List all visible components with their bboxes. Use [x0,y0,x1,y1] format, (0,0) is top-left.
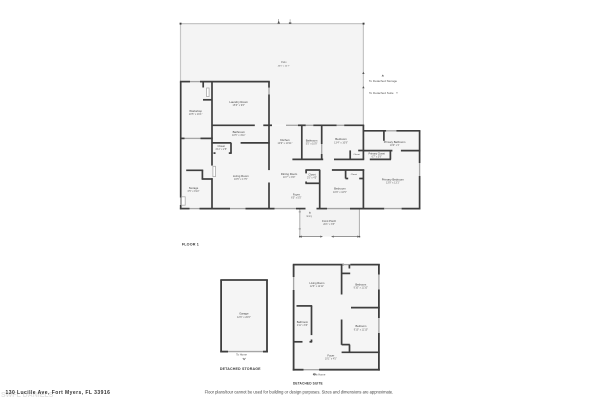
svg-text:4'11" x 2'8": 4'11" x 2'8" [215,148,227,151]
svg-text:2'5" x 4'5": 2'5" x 4'5" [307,178,317,180]
svg-text:Closet: Closet [308,173,315,176]
svg-text:To Home: To Home [236,352,247,356]
svg-text:9'10" x 11'10": 9'10" x 11'10" [354,287,368,290]
svg-text:DETACHED SUITE: DETACHED SUITE [293,381,323,385]
svg-text:10'9" x 10'11": 10'9" x 10'11" [277,142,292,145]
svg-text:16'5" x 17'5": 16'5" x 17'5" [234,178,248,181]
svg-text:Closet: Closet [351,173,358,176]
svg-text:Closet: Closet [353,153,360,156]
svg-text:»: » [396,91,398,95]
svg-text:6'7" x 3'9": 6'7" x 3'9" [372,156,382,158]
svg-text:5'5" x 10'9": 5'5" x 10'9" [306,143,318,146]
svg-text:13'9" x 13'1": 13'9" x 13'1" [386,182,400,185]
svg-text:6'5" x 5'5": 6'5" x 5'5" [291,197,302,200]
svg-text:12'6" x 20'6": 12'6" x 20'6" [237,316,251,319]
svg-text:Bathroom: Bathroom [297,320,308,324]
svg-text:4'11" x 8'6": 4'11" x 8'6" [297,325,308,327]
svg-text:10'1" x 4'5": 10'1" x 4'5" [325,358,337,361]
svg-text:130 Lucille Ave, Fort Myers, F: 130 Lucille Ave, Fort Myers, FL 33916 [6,390,111,396]
svg-text:To Detached Suite: To Detached Suite [369,91,394,95]
svg-text:To Detached Storage: To Detached Storage [369,79,398,83]
svg-text:46'5" x 24'7": 46'5" x 24'7" [278,66,290,68]
svg-text:DETACHED STORAGE: DETACHED STORAGE [220,367,261,371]
svg-text:12'6" x 12'11": 12'6" x 12'11" [310,285,324,288]
svg-text:Entry: Entry [307,215,313,218]
svg-text:Floor plans/tour cannot be use: Floor plans/tour cannot be used for buil… [205,390,394,395]
svg-text:10'7" x 9'9": 10'7" x 9'9" [283,176,295,179]
svg-text:15'6" x 9'6": 15'6" x 9'6" [233,104,245,107]
svg-text:10'9" x 10'5": 10'9" x 10'5" [333,191,347,194]
svg-text:9'10" x 11'10": 9'10" x 11'10" [354,328,368,331]
svg-text:Primary Closet: Primary Closet [368,152,385,155]
svg-text:FLOOR 1: FLOOR 1 [182,243,199,247]
svg-text:10'9" x 5': 10'9" x 5' [390,144,400,147]
svg-text:10'5" x 4'11": 10'5" x 4'11" [232,134,246,137]
svg-text:10'5" x 16'1": 10'5" x 16'1" [189,113,203,116]
svg-text:13'4" x 10'9": 13'4" x 10'9" [334,141,348,144]
svg-text:20'1" x 3'5": 20'1" x 3'5" [323,223,335,226]
svg-text:6'5" x 9'10": 6'5" x 9'10" [188,190,200,193]
svg-text:To Home: To Home [315,372,326,376]
svg-text:Patio: Patio [281,61,287,64]
